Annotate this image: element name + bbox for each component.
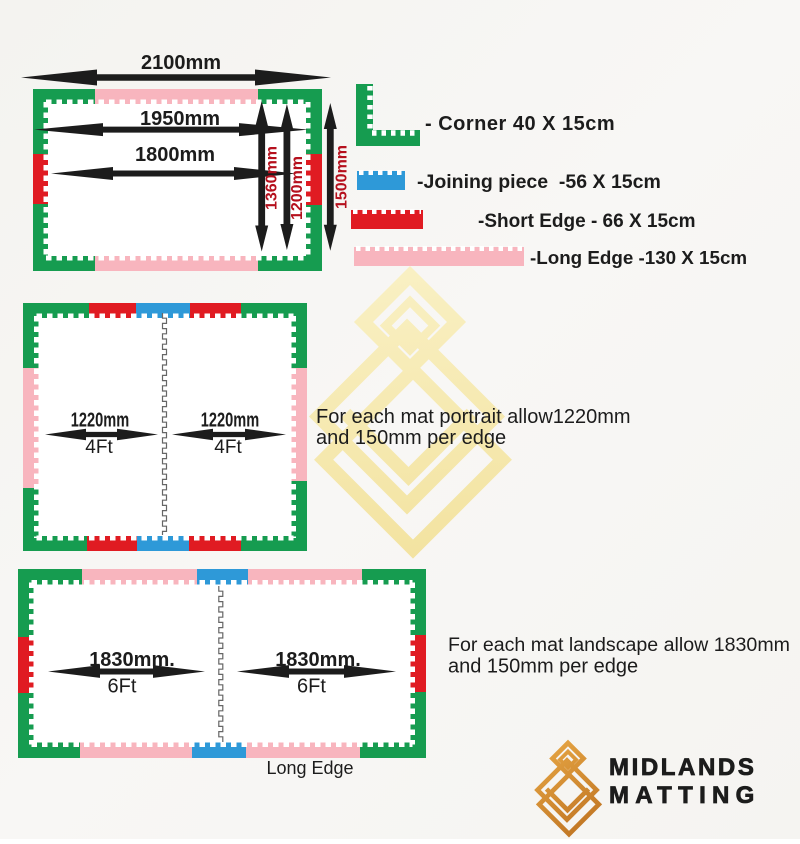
svg-text:1200mm: 1200mm <box>289 156 306 220</box>
svg-text:4Ft: 4Ft <box>214 437 242 458</box>
svg-text:1800mm: 1800mm <box>135 144 215 166</box>
svg-text:-Long Edge -130 X 15cm: -Long Edge -130 X 15cm <box>530 247 747 268</box>
svg-text:1500mm: 1500mm <box>334 145 351 209</box>
svg-text:- Corner 40 X 15cm: - Corner 40 X 15cm <box>425 113 615 135</box>
svg-text:6Ft: 6Ft <box>108 676 137 698</box>
svg-text:1360mm: 1360mm <box>264 146 281 210</box>
svg-text:-Short Edge - 66 X 15cm: -Short Edge - 66 X 15cm <box>478 211 696 232</box>
svg-text:MATTING: MATTING <box>609 782 761 809</box>
svg-text:Long Edge: Long Edge <box>266 758 353 778</box>
svg-text:4Ft: 4Ft <box>85 437 113 458</box>
svg-text:1220mm: 1220mm <box>201 408 259 431</box>
svg-text:6Ft: 6Ft <box>297 676 326 698</box>
svg-text:and 150mm per edge: and 150mm per edge <box>448 656 638 678</box>
svg-text:2100mm: 2100mm <box>141 52 221 74</box>
svg-text:MIDLANDS: MIDLANDS <box>609 754 756 781</box>
svg-text:-Joining piece -56 X 15cm: -Joining piece -56 X 15cm <box>417 171 661 193</box>
svg-text:1220mm: 1220mm <box>71 408 129 431</box>
svg-text:For each mat landscape allow 1: For each mat landscape allow 1830mm <box>448 634 790 656</box>
svg-text:and 150mm per edge: and 150mm per edge <box>316 427 506 449</box>
svg-text:For each mat portrait allow122: For each mat portrait allow1220mm <box>316 406 631 428</box>
